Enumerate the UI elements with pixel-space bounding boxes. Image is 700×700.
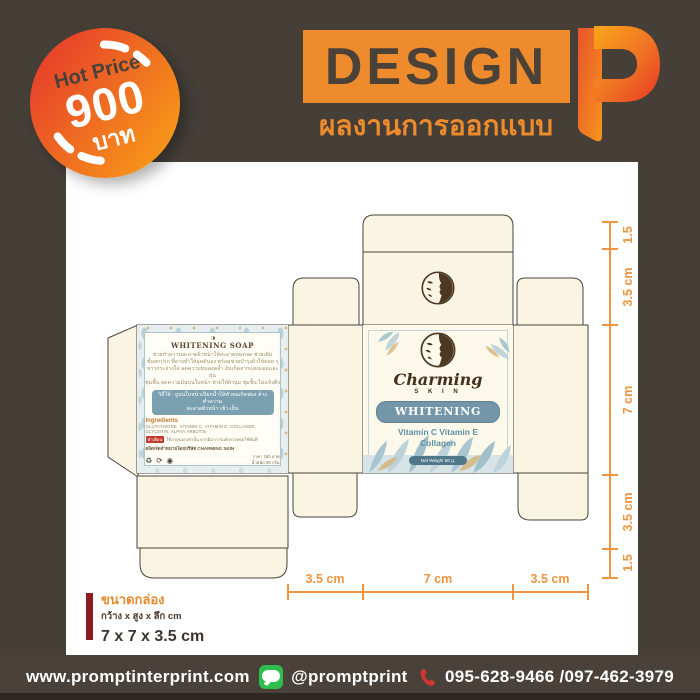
desc-line: ชุ่มชื้น ลดความมันบนใบหน้า ช่วยให้ผิวนุ่… xyxy=(145,380,280,387)
line-contact: @promptprint xyxy=(259,665,408,689)
charming-skin-logo-icon xyxy=(419,331,457,369)
glue-flap xyxy=(108,325,138,477)
ruler-horizontal-line xyxy=(288,591,588,593)
dust-flap-bottom-right xyxy=(518,473,588,520)
subtitle-line: Vitamin C Vitamin E xyxy=(398,427,478,438)
front-panel-artwork: Charming S K I N WHITENING SOAP Vitamin … xyxy=(363,325,513,473)
ruler-tick xyxy=(602,248,618,250)
brand-script-text: Charming xyxy=(394,370,483,389)
design-title: DESIGN xyxy=(325,37,548,97)
ruler-vertical-line xyxy=(609,222,611,578)
size-value: 7 x 7 x 3.5 cm xyxy=(101,628,204,646)
product-name-pill: WHITENING SOAP xyxy=(376,401,500,423)
bottom-tuck-flap xyxy=(140,548,287,578)
line-id-text: @promptprint xyxy=(291,667,408,687)
back-panel-artwork: WHITENING SOAP ช่วยทำความสะอาดผิวหน้าให้… xyxy=(137,325,288,473)
dust-flap-top-left xyxy=(293,278,359,325)
warning-tag: คำเตือน xyxy=(146,436,165,443)
front-subtitle: Vitamin C Vitamin E Collagen xyxy=(398,427,478,450)
size-title: ขนาดกล่อง xyxy=(101,593,204,607)
dim-right-4: 1.5 xyxy=(621,554,635,571)
dim-bottom-1: 7 cm xyxy=(424,572,453,586)
net-weight-pill: Net Weight 80 g. xyxy=(409,456,467,465)
desc-line: ขาวกระจ่างใส ลดความหมองคล้ำ อันเกิดจากแส… xyxy=(145,366,280,380)
dim-right-0: 1.5 xyxy=(621,226,635,243)
back-panel-card: WHITENING SOAP ช่วยทำความสะอาดผิวหน้าให้… xyxy=(144,332,281,466)
back-product-title: WHITENING SOAP xyxy=(171,341,254,350)
phone-contact: 095-628-9466 /097-462-3979 xyxy=(417,667,674,687)
dust-flap-bottom-left xyxy=(293,473,357,517)
recycle-icons: ♻ ⟳ ◉ xyxy=(146,456,175,465)
back-description: ช่วยทำความสะอาดผิวหน้าให้สะอาดหมดจด ช่วย… xyxy=(145,352,280,386)
charming-skin-logo-icon xyxy=(205,336,221,340)
usage-line: วิธีใช้ : ถูบนใบหน้าเปียกน้ำให้ทั่วจนเกิ… xyxy=(154,392,272,406)
ruler-tick xyxy=(602,221,618,223)
top-tuck-flap xyxy=(363,215,513,252)
producer-text: ผลิต/จัดจำหน่ายโดยบริษัท CHARMING SKIN xyxy=(146,445,280,452)
ruler-tick xyxy=(362,584,364,600)
dim-bottom-2: 3.5 cm xyxy=(531,572,570,586)
ruler-tick xyxy=(602,577,618,579)
ruler-tick xyxy=(602,474,618,476)
ruler-tick xyxy=(602,324,618,326)
ingredients-list: GLUTATHIONE, VITAMIN C, VITAMIN E, COLLA… xyxy=(146,424,280,434)
back-panel-footer: ♻ ⟳ ◉ ราคา 160 บาท น้ำหนัก 80 กรัม xyxy=(146,454,280,465)
brand-sub-text: S K I N xyxy=(414,389,461,395)
phone-text: 095-628-9466 /097-462-3979 xyxy=(445,667,674,687)
design-subtitle: ผลงานการออกแบบ xyxy=(300,104,572,148)
size-subtitle: กว้าง x สูง x ลึก cm xyxy=(101,609,204,624)
dust-flap-top-right xyxy=(517,278,583,325)
contact-footer: www.promptinterprint.com @promptprint 09… xyxy=(0,655,700,700)
website-text: www.promptinterprint.com xyxy=(26,667,250,687)
red-accent-bar xyxy=(86,593,93,640)
subtitle-line: Collagen xyxy=(398,438,478,449)
warning-text: ใช้ภายนอกเท่านั้น หากมีอาการแพ้ ควรหยุดใ… xyxy=(166,436,257,443)
ruler-tick xyxy=(602,548,618,550)
price-line: ราคา 160 บาท xyxy=(252,454,280,459)
dim-bottom-0: 3.5 cm xyxy=(306,572,345,586)
p-logo-icon xyxy=(566,24,661,146)
box-size-info: ขนาดกล่อง กว้าง x สูง x ลึก cm 7 x 7 x 3… xyxy=(86,593,204,646)
ruler-tick xyxy=(287,584,289,600)
dim-right-3: 3.5 cm xyxy=(621,493,635,532)
corner-leaves-icon xyxy=(477,327,511,361)
lid-logo-stamp-icon xyxy=(420,270,456,306)
warning-row: คำเตือน ใช้ภายนอกเท่านั้น หากมีอาการแพ้ … xyxy=(146,436,280,443)
price-note: ราคา 160 บาท น้ำหนัก 80 กรัม xyxy=(252,454,280,465)
design-logo-box: DESIGN xyxy=(303,30,570,103)
artboard-canvas: WHITENING SOAP ช่วยทำความสะอาดผิวหน้าให้… xyxy=(66,162,638,655)
usage-instructions-box: วิธีใช้ : ถูบนใบหน้าเปียกน้ำให้ทั่วจนเกิ… xyxy=(152,390,274,415)
ruler-tick xyxy=(512,584,514,600)
bottom-panel xyxy=(137,476,288,548)
phone-icon xyxy=(417,667,437,687)
line-app-icon xyxy=(259,665,283,689)
usage-line: สะอาดผิวหน้า เช้า-เย็น xyxy=(154,406,272,413)
side-panel-left xyxy=(288,325,363,473)
footer-bottom-strip xyxy=(0,693,700,700)
corner-leaves-icon xyxy=(365,327,399,361)
price-line: น้ำหนัก 80 กรัม xyxy=(252,460,280,465)
dim-right-1: 3.5 cm xyxy=(621,268,635,307)
ruler-tick xyxy=(587,584,589,600)
dim-right-2: 7 cm xyxy=(621,386,635,415)
side-panel-right xyxy=(513,325,588,473)
